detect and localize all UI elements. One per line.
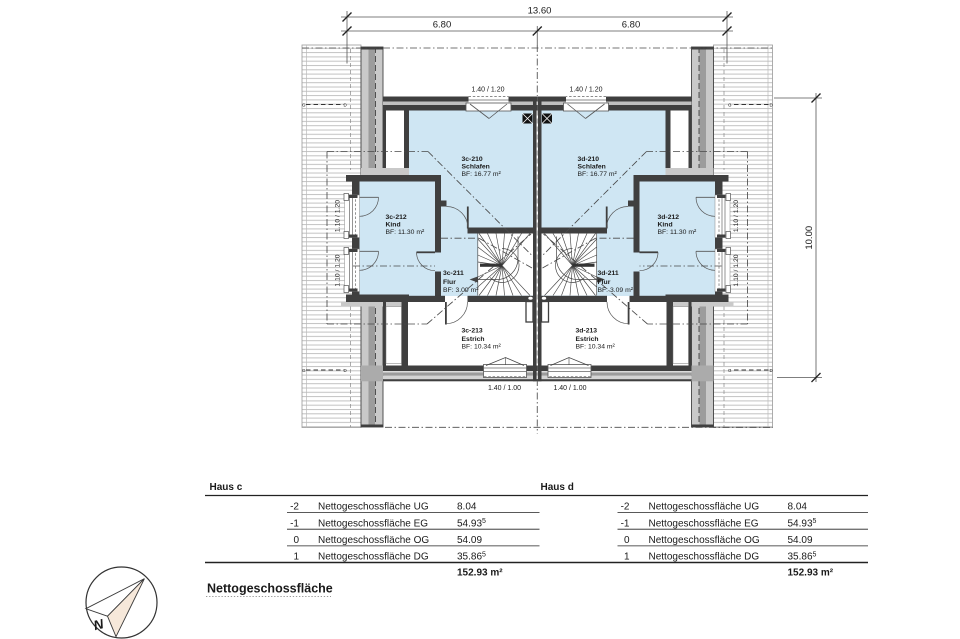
svg-text:G: G [728, 368, 732, 373]
svg-text:-2: -2 [621, 502, 630, 513]
svg-text:10.00: 10.00 [804, 226, 815, 250]
svg-text:BF: 11.30 m²: BF: 11.30 m² [658, 229, 698, 236]
svg-text:Estrich: Estrich [576, 336, 599, 343]
svg-text:1.40 / 1.00: 1.40 / 1.00 [553, 385, 586, 392]
svg-text:Nettogeschossfläche OG: Nettogeschossfläche OG [318, 535, 429, 546]
svg-text:1.10 / 1.20: 1.10 / 1.20 [335, 254, 342, 286]
svg-text:Kind: Kind [658, 222, 673, 229]
svg-text:Kind: Kind [386, 222, 401, 229]
svg-text:3c-213: 3c-213 [462, 328, 483, 335]
svg-text:54.935: 54.935 [788, 518, 817, 529]
svg-text:3c-210: 3c-210 [462, 156, 483, 163]
svg-text:3c-212: 3c-212 [386, 214, 407, 221]
svg-text:54.935: 54.935 [457, 518, 486, 529]
svg-text:6.80: 6.80 [433, 20, 452, 31]
svg-text:35.865: 35.865 [457, 552, 486, 563]
svg-text:1.10 / 1.20: 1.10 / 1.20 [733, 254, 740, 286]
svg-text:1.40 / 1.00: 1.40 / 1.00 [488, 385, 521, 392]
svg-text:BF: 16.77 m²: BF: 16.77 m² [462, 171, 502, 178]
svg-text:0: 0 [293, 535, 299, 546]
svg-text:Flur: Flur [443, 279, 456, 286]
svg-text:D: D [770, 103, 774, 108]
svg-text:BF: 3.09 m²: BF: 3.09 m² [443, 287, 479, 294]
svg-text:35.865: 35.865 [788, 552, 817, 563]
svg-text:Nettogeschossfläche UG: Nettogeschossfläche UG [318, 502, 429, 513]
svg-text:1.10 / 1.20: 1.10 / 1.20 [335, 200, 342, 232]
svg-text:0: 0 [624, 535, 630, 546]
svg-text:1.10 / 1.20: 1.10 / 1.20 [733, 200, 740, 232]
svg-text:3d-210: 3d-210 [578, 156, 600, 163]
svg-text:Schlafen: Schlafen [578, 164, 606, 171]
svg-text:BF: 16.77 m²: BF: 16.77 m² [578, 171, 618, 178]
svg-text:152.93 m²: 152.93 m² [457, 568, 503, 579]
svg-text:13.60: 13.60 [528, 6, 552, 17]
svg-text:Nettogeschossfläche EG: Nettogeschossfläche EG [318, 518, 428, 529]
svg-text:3d-212: 3d-212 [658, 214, 680, 221]
svg-text:BF: 10.34 m²: BF: 10.34 m² [576, 344, 616, 351]
svg-text:BF: 11.30 m²: BF: 11.30 m² [386, 229, 426, 236]
svg-text:8.04: 8.04 [788, 502, 808, 513]
svg-text:Estrich: Estrich [462, 336, 485, 343]
svg-text:Nettogeschossfläche DG: Nettogeschossfläche DG [649, 552, 760, 563]
svg-text:1: 1 [624, 552, 630, 563]
svg-text:Nettogeschossfläche: Nettogeschossfläche [207, 582, 333, 596]
svg-text:-2: -2 [290, 502, 299, 513]
svg-text:1.40 / 1.20: 1.40 / 1.20 [471, 87, 504, 94]
svg-text:6.80: 6.80 [622, 20, 641, 31]
svg-text:54.09: 54.09 [788, 535, 813, 546]
svg-text:Nettogeschossfläche UG: Nettogeschossfläche UG [649, 502, 760, 513]
svg-text:-1: -1 [621, 518, 630, 529]
svg-text:G: G [302, 368, 306, 373]
svg-text:Haus c: Haus c [210, 482, 243, 493]
svg-text:G: G [728, 103, 732, 108]
svg-text:3c-211: 3c-211 [443, 270, 464, 277]
svg-text:Schlafen: Schlafen [462, 164, 490, 171]
svg-text:Flur: Flur [598, 279, 611, 286]
svg-text:BF: 3.09 m²: BF: 3.09 m² [598, 287, 634, 294]
svg-text:152.93 m²: 152.93 m² [788, 568, 834, 579]
svg-text:Haus d: Haus d [541, 482, 574, 493]
svg-text:3d-211: 3d-211 [598, 270, 619, 277]
svg-text:G: G [302, 103, 306, 108]
svg-text:Nettogeschossfläche EG: Nettogeschossfläche EG [649, 518, 759, 529]
svg-text:-1: -1 [290, 518, 299, 529]
svg-text:Nettogeschossfläche OG: Nettogeschossfläche OG [649, 535, 760, 546]
svg-text:BF: 10.34 m²: BF: 10.34 m² [462, 344, 502, 351]
svg-text:8.04: 8.04 [457, 502, 477, 513]
svg-text:Nettogeschossfläche DG: Nettogeschossfläche DG [318, 552, 429, 563]
svg-text:D: D [770, 368, 774, 373]
svg-text:1: 1 [293, 552, 299, 563]
svg-text:54.09: 54.09 [457, 535, 482, 546]
svg-text:1.40 / 1.20: 1.40 / 1.20 [569, 87, 602, 94]
svg-text:3d-213: 3d-213 [576, 328, 598, 335]
